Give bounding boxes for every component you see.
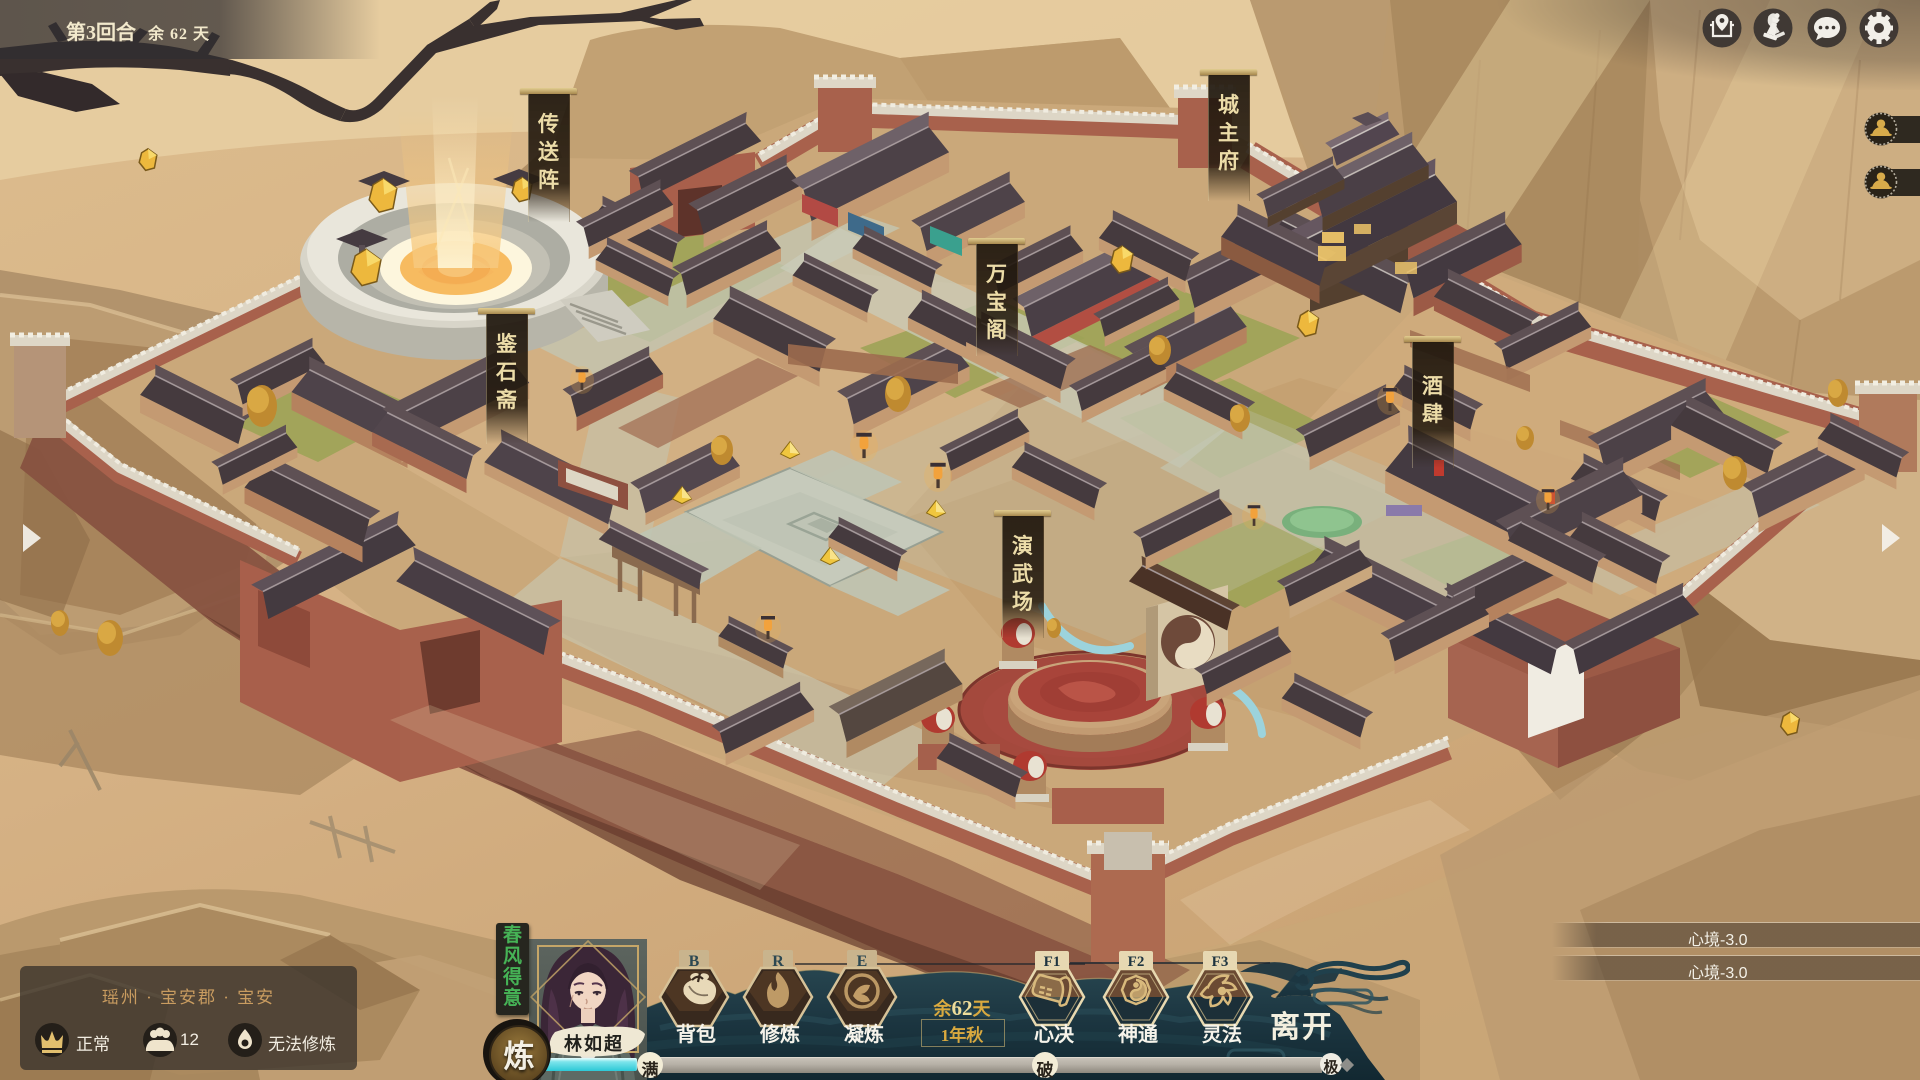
- svg-text:F2: F2: [1128, 954, 1145, 970]
- svg-text:心决: 心决: [1034, 1023, 1075, 1046]
- svg-text:F3: F3: [1212, 954, 1229, 970]
- svg-text:F1: F1: [1044, 954, 1061, 970]
- svg-text:凝炼: 凝炼: [844, 1022, 884, 1046]
- svg-text:背包: 背包: [676, 1022, 716, 1046]
- svg-text:修炼: 修炼: [759, 1022, 800, 1046]
- svg-text:灵法: 灵法: [1202, 1022, 1242, 1046]
- svg-text:神通: 神通: [1118, 1022, 1158, 1046]
